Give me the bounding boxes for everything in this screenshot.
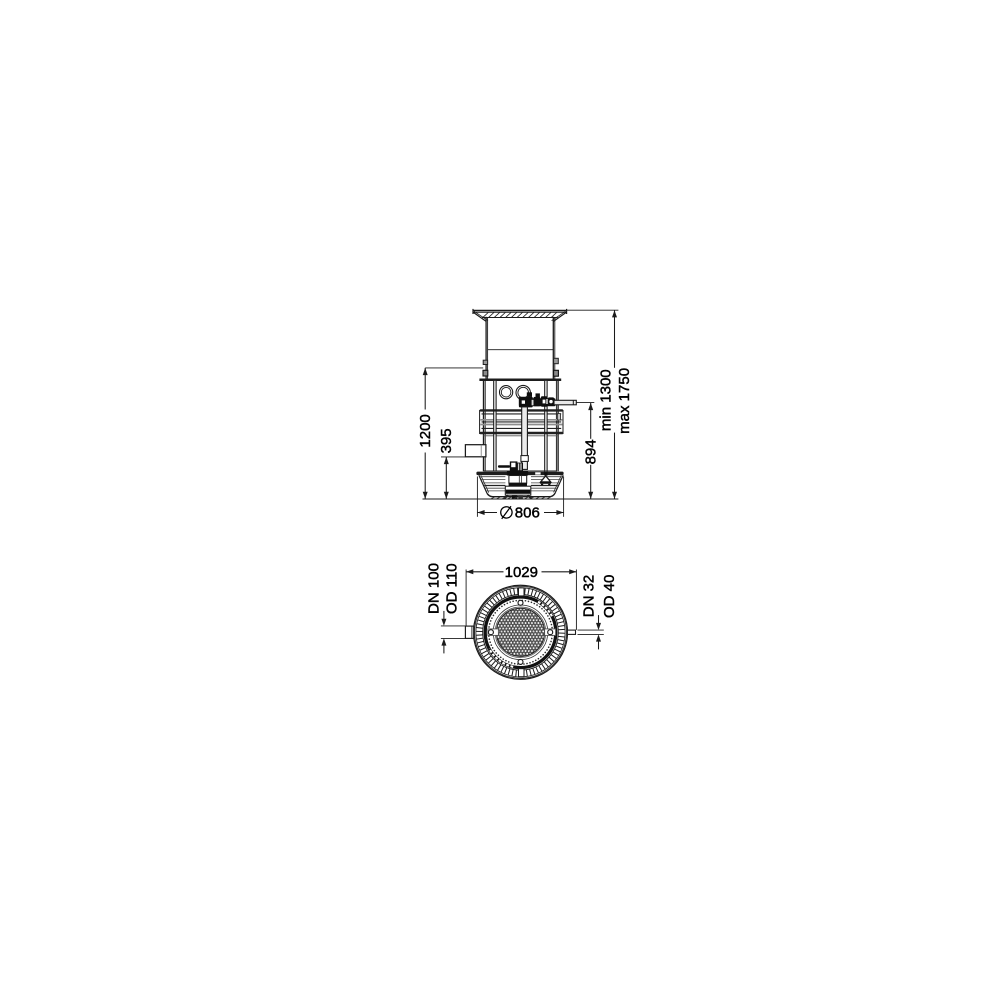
svg-text:DN 100: DN 100 bbox=[426, 563, 443, 614]
svg-text:894: 894 bbox=[582, 439, 599, 464]
svg-text:1200: 1200 bbox=[417, 414, 434, 447]
svg-text:min 1300: min 1300 bbox=[597, 369, 614, 431]
svg-text:DN 32: DN 32 bbox=[581, 575, 598, 618]
svg-text:max 1750: max 1750 bbox=[616, 368, 633, 434]
svg-text:806: 806 bbox=[515, 505, 540, 522]
svg-text:1029: 1029 bbox=[505, 564, 538, 581]
svg-text:OD 40: OD 40 bbox=[601, 575, 618, 618]
svg-text:395: 395 bbox=[438, 428, 455, 453]
svg-text:OD 110: OD 110 bbox=[443, 563, 460, 614]
